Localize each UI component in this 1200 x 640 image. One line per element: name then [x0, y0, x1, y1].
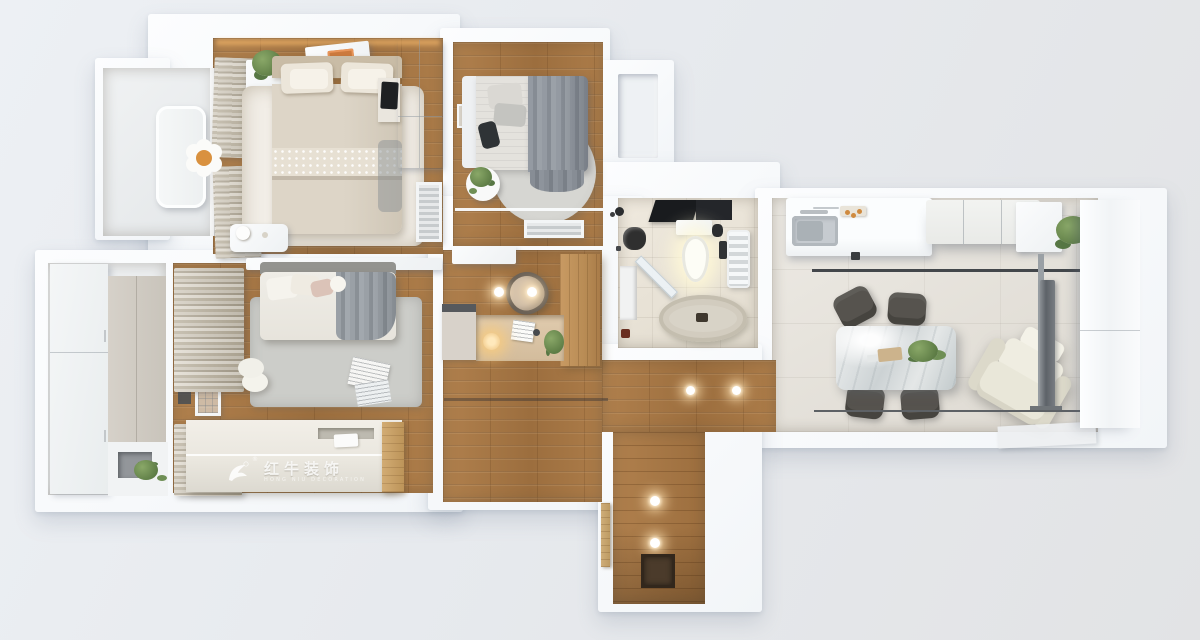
room-entry-hall: [0, 0, 1200, 640]
doormat: [641, 554, 675, 588]
ceiling-spotlight: [650, 538, 660, 548]
floor-plan-render: ® 红牛装饰 HONG NIU DECORATION: [0, 0, 1200, 640]
ceiling-spotlight: [650, 496, 660, 506]
open-door-leaf: [601, 503, 610, 567]
